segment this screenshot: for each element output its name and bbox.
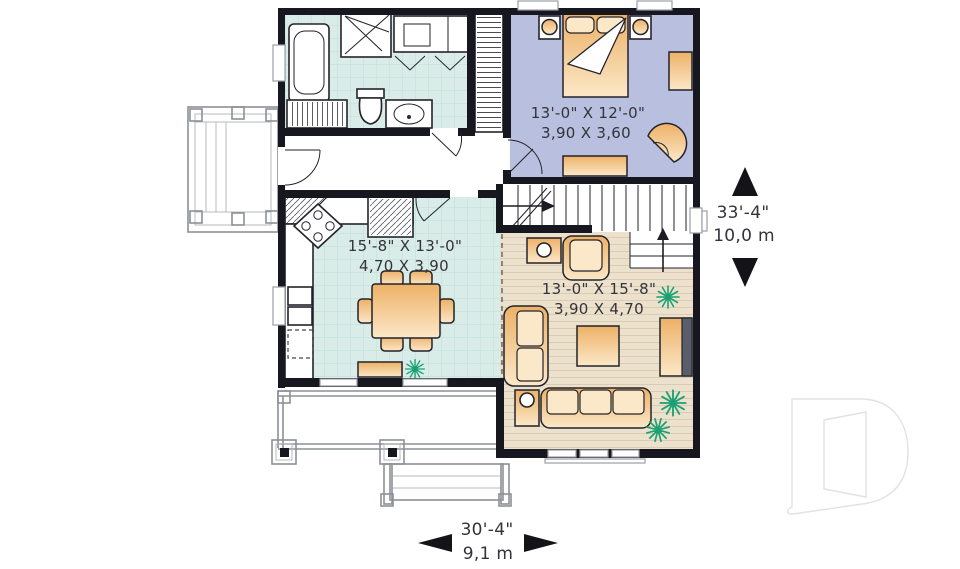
side-table xyxy=(527,238,561,263)
bedroom-window xyxy=(637,1,672,10)
side-deck xyxy=(188,107,278,232)
bathtub xyxy=(289,24,329,102)
deck-door xyxy=(285,150,320,185)
stair-window-sill xyxy=(702,211,707,231)
dining-table xyxy=(372,284,440,338)
living-dimensions-imperial: 13'-0" X 15'-8" xyxy=(542,282,656,297)
triangle-up-icon xyxy=(732,167,758,196)
kitchen-dimensions-imperial: 15'-8" X 13'-0" xyxy=(348,239,462,254)
depth-dimension-imperial: 33'-4" xyxy=(717,205,770,222)
porch-column xyxy=(380,440,404,464)
bedroom-dresser-right xyxy=(669,52,692,90)
bedroom-dimensions-metric: 3,90 X 3,60 xyxy=(541,126,631,141)
kitchen-front-window xyxy=(403,379,447,386)
tv-unit xyxy=(660,318,692,376)
nightstand-right xyxy=(630,16,651,39)
living-dimensions-metric: 3,90 X 4,70 xyxy=(554,302,644,317)
armchair xyxy=(563,236,609,280)
loveseat xyxy=(504,306,548,386)
triangle-right-icon xyxy=(524,534,558,552)
coffee-table xyxy=(577,326,619,366)
nightstand-left xyxy=(539,16,560,39)
double-bed xyxy=(563,14,628,97)
bathroom-door xyxy=(432,133,462,156)
hall-closet xyxy=(475,14,503,132)
deck-door-opening xyxy=(278,147,285,185)
kitchen-front-window xyxy=(320,379,357,386)
depth-dimension-metric: 10,0 m xyxy=(713,228,775,245)
triangle-left-icon xyxy=(418,534,452,552)
sofa xyxy=(541,388,651,428)
living-window xyxy=(580,450,608,457)
width-dimension-metric: 9,1 m xyxy=(463,546,514,563)
window-bench xyxy=(358,362,402,377)
corner-shower xyxy=(341,13,391,57)
stairwell-floor xyxy=(503,184,693,232)
porch-column xyxy=(272,440,296,464)
sink-counter xyxy=(386,100,432,128)
dining-chair xyxy=(358,299,373,323)
floor-plan-drawing xyxy=(0,0,960,569)
living-window xyxy=(612,450,639,457)
front-porch xyxy=(272,391,511,506)
kitchen-dimensions-metric: 4,70 X 3,90 xyxy=(359,259,449,274)
end-table-lamp xyxy=(515,390,539,426)
linen-closet xyxy=(287,100,347,128)
front-steps xyxy=(381,464,511,506)
floor-plan-image: 13'-0" X 12'-0" 3,90 X 3,60 15'-8" X 13'… xyxy=(0,0,960,569)
drummond-d-logo xyxy=(788,399,908,514)
dining-chair xyxy=(439,299,454,323)
triangle-down-icon xyxy=(732,258,758,287)
kitchen-side-window xyxy=(273,287,285,325)
bedroom-dresser-bottom xyxy=(563,156,627,176)
width-dimension-imperial: 30'-4" xyxy=(461,522,514,539)
bathroom-window xyxy=(273,45,285,81)
living-window-sill xyxy=(545,459,645,463)
bedroom-dimensions-imperial: 13'-0" X 12'-0" xyxy=(531,106,645,121)
stair-window xyxy=(690,208,702,233)
living-window xyxy=(548,450,576,457)
bedroom-window xyxy=(518,1,558,10)
